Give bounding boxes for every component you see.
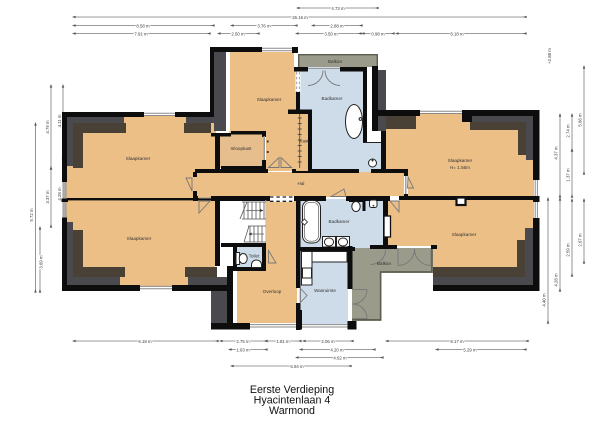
svg-text:2.06 m: 2.06 m bbox=[321, 339, 335, 344]
svg-text:3.76 m: 3.76 m bbox=[257, 23, 271, 28]
svg-text:3.50 m: 3.50 m bbox=[324, 31, 338, 36]
svg-text:4.79 m: 4.79 m bbox=[45, 120, 50, 134]
svg-text:4.62 m: 4.62 m bbox=[333, 355, 347, 360]
svg-text:2.67 m: 2.67 m bbox=[578, 233, 583, 247]
svg-text:0.98 m: 0.98 m bbox=[371, 31, 385, 36]
svg-text:Slaapkamer: Slaapkamer bbox=[127, 236, 152, 241]
svg-text:2.50 m: 2.50 m bbox=[231, 31, 245, 36]
svg-text:9.72 m: 9.72 m bbox=[29, 208, 34, 222]
svg-text:Warmond: Warmond bbox=[269, 405, 315, 417]
svg-text:Slaapkamer: Slaapkamer bbox=[126, 156, 151, 161]
svg-text:Hal: Hal bbox=[298, 181, 305, 186]
svg-text:4.20 m: 4.20 m bbox=[330, 347, 344, 352]
svg-text:8.18 m: 8.18 m bbox=[450, 31, 464, 36]
svg-text:1.37 m: 1.37 m bbox=[566, 168, 571, 182]
svg-text:2.88 m: 2.88 m bbox=[330, 23, 344, 28]
svg-text:3.37 m: 3.37 m bbox=[45, 190, 50, 204]
svg-text:Wasruimte: Wasruimte bbox=[314, 288, 336, 293]
svg-text:Toilet: Toilet bbox=[249, 254, 260, 259]
svg-text:6.94 m: 6.94 m bbox=[290, 364, 304, 369]
svg-text:Balkon: Balkon bbox=[377, 261, 391, 266]
svg-text:Overloop: Overloop bbox=[263, 289, 282, 294]
svg-text:3.69 m: 3.69 m bbox=[39, 255, 44, 269]
svg-text:Slaapkamer: Slaapkamer bbox=[257, 97, 282, 102]
svg-text:Kast: Kast bbox=[299, 139, 309, 144]
svg-text:8.17 m: 8.17 m bbox=[450, 339, 464, 344]
svg-text:Balkon: Balkon bbox=[328, 59, 342, 64]
svg-text:4.28 m: 4.28 m bbox=[57, 187, 62, 201]
svg-text:1.63 m: 1.63 m bbox=[236, 347, 250, 352]
svg-text:2.59 m: 2.59 m bbox=[566, 243, 571, 257]
svg-text:Badkamer: Badkamer bbox=[322, 96, 343, 101]
svg-text:4.11 m: 4.11 m bbox=[57, 114, 62, 127]
svg-text:4.37 m: 4.37 m bbox=[554, 146, 559, 160]
svg-text:Inloopkast: Inloopkast bbox=[231, 146, 253, 151]
svg-text:H= 1.56m: H= 1.56m bbox=[450, 165, 470, 170]
svg-text:4.73 m: 4.73 m bbox=[331, 6, 345, 11]
svg-text:7.91 m: 7.91 m bbox=[134, 31, 148, 36]
svg-text:8.58 m: 8.58 m bbox=[136, 23, 150, 28]
svg-text:2.75 m: 2.75 m bbox=[236, 339, 250, 344]
svg-text:4.40 m: 4.40 m bbox=[542, 293, 547, 307]
svg-text:Slaapkamer: Slaapkamer bbox=[448, 158, 473, 163]
svg-text:6.18 m: 6.18 m bbox=[138, 339, 152, 344]
svg-text:Slaapkamer: Slaapkamer bbox=[452, 232, 477, 237]
svg-text:5.66 m: 5.66 m bbox=[578, 113, 583, 127]
svg-text:1.81 m: 1.81 m bbox=[276, 339, 290, 344]
svg-text:2.74 m: 2.74 m bbox=[566, 124, 571, 138]
svg-text:+2.88 m: +2.88 m bbox=[547, 48, 552, 64]
svg-text:4.28 m: 4.28 m bbox=[554, 273, 559, 287]
svg-text:5.29 m: 5.29 m bbox=[463, 347, 477, 352]
svg-text:26.16 m: 26.16 m bbox=[292, 15, 308, 20]
svg-text:Badkamer: Badkamer bbox=[329, 219, 350, 224]
